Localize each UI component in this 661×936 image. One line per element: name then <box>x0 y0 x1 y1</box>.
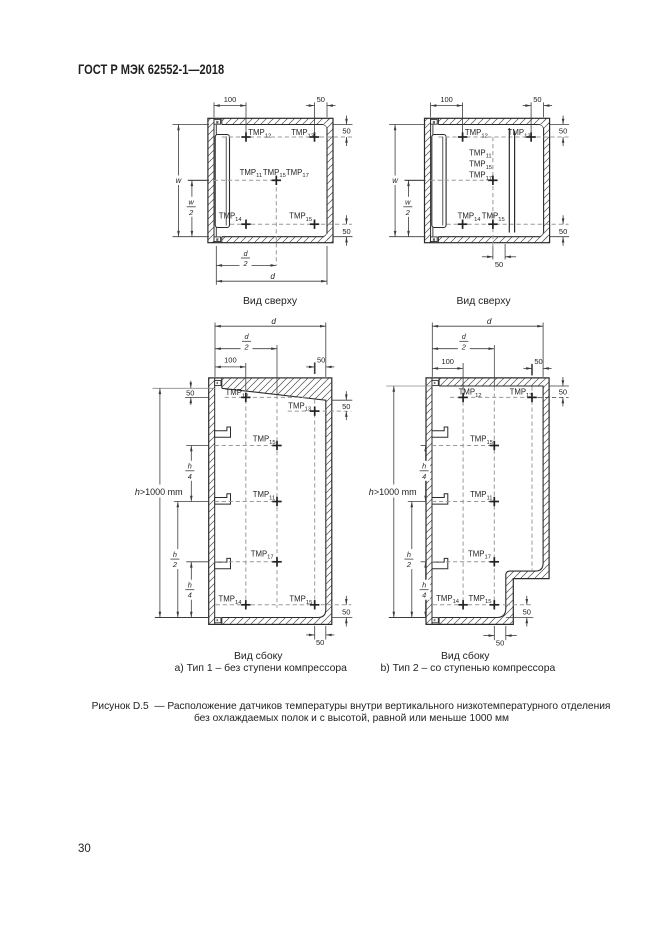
svg-text:TMP14: TMP14 <box>436 594 460 605</box>
svg-text:2: 2 <box>461 342 466 351</box>
svg-text:d: d <box>487 317 492 326</box>
svg-text:50: 50 <box>523 607 531 616</box>
svg-text:50: 50 <box>533 95 541 104</box>
svg-text:h>1000 mm: h>1000 mm <box>369 487 417 497</box>
svg-text:h: h <box>422 581 426 590</box>
svg-text:4: 4 <box>188 472 192 481</box>
svg-text:TMP11: TMP11 <box>253 490 276 501</box>
svg-text:4: 4 <box>422 472 426 481</box>
svg-text:TMP14: TMP14 <box>219 595 243 606</box>
svg-text:50: 50 <box>342 127 350 136</box>
svg-text:50: 50 <box>534 357 542 366</box>
svg-text:100: 100 <box>224 356 237 365</box>
svg-text:50: 50 <box>186 388 194 397</box>
svg-text:2: 2 <box>406 560 411 569</box>
svg-text:TMP15: TMP15 <box>470 435 493 446</box>
svg-text:h: h <box>173 550 177 559</box>
svg-text:TMP11: TMP11 <box>470 490 493 501</box>
svg-text:h: h <box>407 550 411 559</box>
svg-text:2: 2 <box>243 342 248 351</box>
svg-text:4: 4 <box>422 591 426 600</box>
svg-text:100: 100 <box>440 95 453 104</box>
svg-text:d: d <box>271 317 276 326</box>
svg-text:50: 50 <box>342 227 350 236</box>
svg-text:50: 50 <box>495 260 503 269</box>
svg-text:TMP15: TMP15 <box>469 160 492 171</box>
svg-text:2: 2 <box>405 208 410 217</box>
svg-text:TMP12: TMP12 <box>248 128 271 139</box>
svg-text:h>1000 mm: h>1000 mm <box>135 487 183 497</box>
svg-text:TMP11: TMP11 <box>240 168 263 179</box>
svg-text:TMP17: TMP17 <box>468 549 491 560</box>
svg-text:2: 2 <box>172 560 177 569</box>
svg-text:50: 50 <box>317 356 325 365</box>
svg-text:100: 100 <box>441 357 454 366</box>
svg-text:50: 50 <box>316 638 324 647</box>
svg-text:50: 50 <box>317 95 325 104</box>
svg-text:50: 50 <box>342 607 350 616</box>
svg-text:50: 50 <box>559 227 567 236</box>
svg-text:TMP11: TMP11 <box>469 148 492 159</box>
svg-text:2: 2 <box>242 259 247 268</box>
svg-text:TMP17: TMP17 <box>251 549 274 560</box>
svg-text:w: w <box>405 198 411 207</box>
svg-text:TMP15: TMP15 <box>263 168 286 179</box>
svg-text:4: 4 <box>188 591 192 600</box>
svg-text:TMP15: TMP15 <box>289 212 312 223</box>
svg-text:2: 2 <box>188 208 193 217</box>
svg-text:TMP14: TMP14 <box>458 212 482 223</box>
svg-text:TMP15: TMP15 <box>469 594 492 605</box>
svg-text:TMP15: TMP15 <box>289 595 312 606</box>
svg-text:50: 50 <box>559 127 567 136</box>
svg-text:100: 100 <box>224 95 237 104</box>
svg-text:h: h <box>422 462 426 471</box>
svg-text:d: d <box>270 272 275 281</box>
svg-text:h: h <box>188 581 192 590</box>
svg-text:50: 50 <box>342 402 350 411</box>
svg-text:TMP15: TMP15 <box>253 435 276 446</box>
svg-text:TMP12: TMP12 <box>465 128 488 139</box>
svg-text:h: h <box>188 462 192 471</box>
svg-text:TMP13: TMP13 <box>291 128 314 139</box>
svg-text:50: 50 <box>559 388 567 397</box>
svg-text:50: 50 <box>496 639 504 648</box>
svg-text:TMP13: TMP13 <box>508 128 531 139</box>
svg-text:w: w <box>189 198 195 207</box>
svg-text:TMP17: TMP17 <box>286 168 309 179</box>
